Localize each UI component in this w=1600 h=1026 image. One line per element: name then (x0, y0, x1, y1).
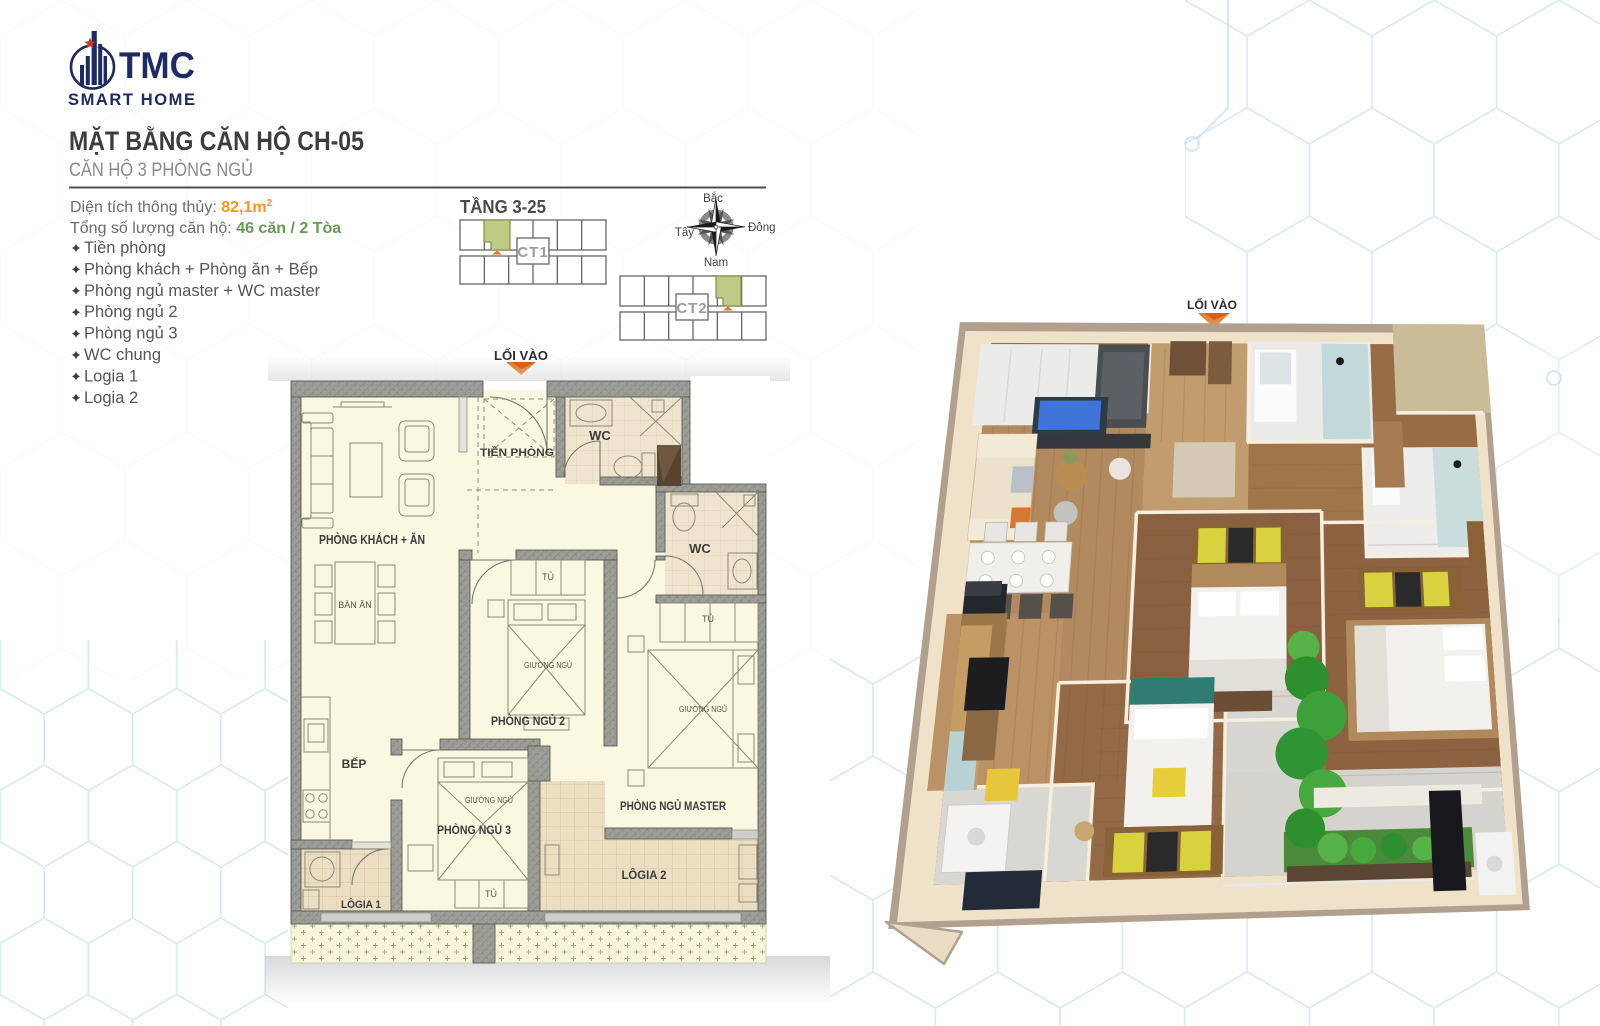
svg-text:TỦ: TỦ (485, 888, 497, 899)
svg-text:PHÒNG NGỦ 3: PHÒNG NGỦ 3 (437, 822, 511, 837)
svg-text:LÔGIA 2: LÔGIA 2 (622, 869, 667, 882)
svg-text:LỐI VÀO: LỐI VÀO (494, 348, 548, 363)
svg-text:Đông: Đông (748, 222, 776, 234)
svg-text:Tiền phòng: Tiền phòng (84, 239, 166, 257)
svg-text:Phòng ngủ 3: Phòng ngủ 3 (84, 325, 178, 343)
svg-text:MẶT BẰNG CĂN HỘ CH-05: MẶT BẰNG CĂN HỘ CH-05 (69, 125, 364, 156)
svg-text:BÀN ĂN: BÀN ĂN (338, 600, 372, 610)
svg-text:Phòng khách + Phòng ăn + Bếp: Phòng khách + Phòng ăn + Bếp (84, 260, 318, 278)
svg-text:PHÒNG NGỦ MASTER: PHÒNG NGỦ MASTER (620, 798, 726, 813)
svg-text:WC chung: WC chung (84, 346, 161, 364)
svg-text:PHÒNG KHÁCH + ĂN: PHÒNG KHÁCH + ĂN (319, 532, 425, 547)
svg-text:Nam: Nam (704, 257, 728, 269)
svg-text:Phòng ngủ master + WC master: Phòng ngủ master + WC master (84, 282, 321, 300)
svg-text:TỦ: TỦ (702, 613, 714, 624)
svg-text:WC: WC (589, 428, 611, 443)
svg-text:Tổng số lượng căn hộ: 46 căn /: Tổng số lượng căn hộ: 46 căn / 2 Tòa (70, 219, 341, 237)
svg-text:Logia 1: Logia 1 (84, 367, 138, 385)
svg-text:GIƯỜNG NGỦ: GIƯỜNG NGỦ (524, 661, 572, 670)
svg-text:CT1: CT1 (517, 244, 548, 261)
svg-text:Bắc: Bắc (703, 192, 723, 205)
svg-text:TỦ: TỦ (542, 571, 554, 582)
svg-text:Logia 2: Logia 2 (84, 389, 138, 407)
svg-text:PHÒNG NGỦ 2: PHÒNG NGỦ 2 (491, 713, 565, 728)
svg-text:Tây: Tây (675, 227, 694, 239)
svg-text:WC: WC (689, 541, 711, 556)
svg-text:Phòng ngủ 2: Phòng ngủ 2 (84, 303, 178, 321)
svg-text:SMART HOME: SMART HOME (68, 91, 195, 109)
svg-text:GIƯỜNG NGỦ: GIƯỜNG NGỦ (465, 796, 513, 805)
svg-text:Diện tích thông thủy: 82,1m2: Diện tích thông thủy: 82,1m2 (70, 198, 273, 216)
svg-text:BẾP: BẾP (342, 756, 367, 771)
svg-text:CĂN HỘ 3 PHÒNG NGỦ: CĂN HỘ 3 PHÒNG NGỦ (69, 159, 253, 181)
svg-text:LỐI VÀO: LỐI VÀO (1187, 297, 1237, 312)
svg-text:CT2: CT2 (676, 300, 707, 317)
svg-text:TIỀN PHÒNG: TIỀN PHÒNG (480, 446, 554, 459)
svg-text:TẦNG 3-25: TẦNG 3-25 (460, 196, 546, 217)
svg-text:GIƯỜNG NGỦ: GIƯỜNG NGỦ (679, 705, 727, 714)
svg-text:LÔGIA 1: LÔGIA 1 (341, 898, 381, 911)
svg-text:TMC: TMC (119, 45, 195, 86)
